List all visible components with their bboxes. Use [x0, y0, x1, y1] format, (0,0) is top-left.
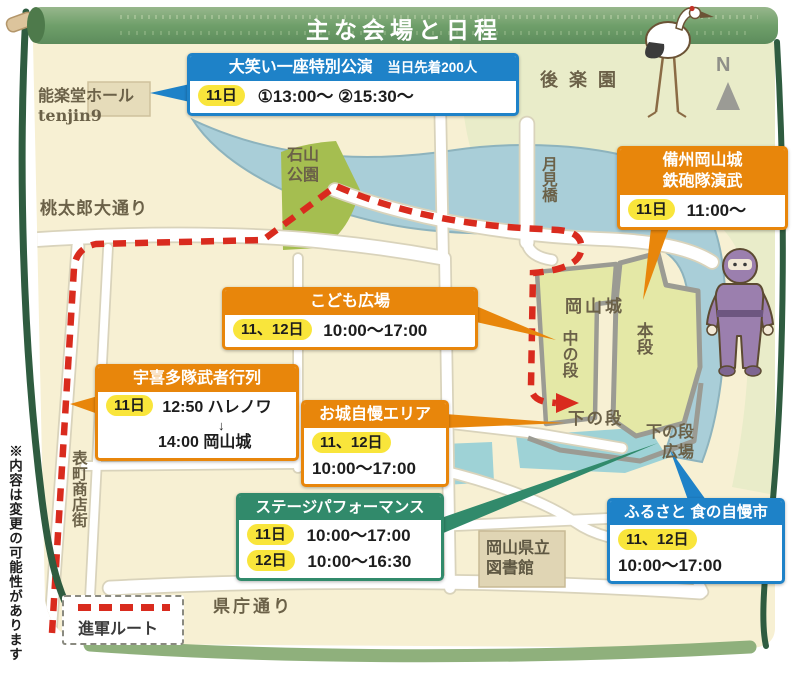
stage-row-2: 12日 10:00〜16:30 [247, 549, 433, 575]
ukita-arrow-icon: ↓ [106, 420, 288, 431]
label-omotecho: 表町商店街 [69, 450, 88, 562]
teppotai-name-line1: 備州岡山城 [624, 151, 781, 172]
label-shimonodan: 下の段 [568, 409, 624, 429]
callout-stage: ステージパフォーマンス 11日 10:00〜17:00 12日 10:00〜16… [236, 493, 444, 581]
label-kencho-dori: 県庁通り [213, 597, 293, 618]
oshiro-time: 10:00〜17:00 [312, 456, 438, 481]
callout-owarai: 大笑い一座特別公演 当日先着200人 11日 ①13:00〜 ②15:30〜 [187, 53, 519, 116]
stage-row-1: 11日 10:00〜17:00 [247, 523, 433, 549]
callout-oshiro: お城自慢エリア 11、12日 10:00〜17:00 [301, 400, 449, 487]
event-map-page: { "title": "主な会場と日程", "note": "※内容は変更の可能… [0, 0, 800, 679]
disclaimer-note: ※内容は変更の可能性があります [4, 444, 24, 676]
label-okayama-castle: 岡山城 [565, 297, 625, 318]
label-library: 岡山県立 図書館 [486, 538, 550, 577]
stage-name: ステージパフォーマンス [239, 496, 441, 520]
ukita-name: 宇喜多隊武者行列 [98, 367, 296, 392]
callout-furusato: ふるさと 食の自慢市 11、12日 10:00〜17:00 [607, 498, 785, 584]
page-title: 主な会場と日程 [30, 11, 778, 45]
label-nohgakudo: 能楽堂ホール tenjin9 [38, 86, 134, 125]
owarai-time: ①13:00〜 ②15:30〜 [258, 87, 414, 106]
owarai-note: 当日先着200人 [387, 60, 477, 75]
route-legend-label: 進軍ルート [78, 615, 182, 639]
compass-label: N [716, 54, 730, 77]
teppotai-name-line2: 鉄砲隊演武 [624, 172, 781, 193]
furusato-time: 10:00〜17:00 [618, 553, 774, 578]
furusato-days: 11、12日 [618, 529, 697, 550]
label-shimonodan-hiroba: 下の段 広場 [646, 422, 694, 461]
callout-kodomo: こども広場 11、12日 10:00〜17:00 [222, 287, 478, 350]
callout-ukita: 宇喜多隊武者行列 11日 12:50 ハレノワ ↓ 14:00 岡山城 [95, 364, 299, 461]
kodomo-name: こども広場 [225, 290, 475, 315]
ukita-time2: 14:00 岡山城 [106, 431, 288, 455]
teppotai-days: 11日 [628, 199, 675, 220]
route-legend: 進軍ルート [62, 595, 184, 645]
kodomo-time: 10:00〜17:00 [323, 321, 427, 340]
kodomo-days: 11、12日 [233, 319, 312, 340]
oshiro-name: お城自慢エリア [304, 403, 446, 428]
callout-teppotai: 備州岡山城 鉄砲隊演武 11日 11:00〜 [617, 146, 788, 230]
label-korakuen: 後楽園 [540, 70, 627, 92]
route-dash-sample [78, 604, 170, 611]
ukita-time1: 12:50 ハレノワ [162, 399, 271, 416]
ukita-days: 11日 [106, 395, 153, 416]
label-hondan: 本段 [633, 322, 653, 368]
furusato-name: ふるさと 食の自慢市 [610, 501, 782, 525]
teppotai-time: 11:00〜 [687, 201, 747, 220]
owarai-days: 11日 [198, 85, 245, 106]
owarai-name: 大笑い一座特別公演 [229, 59, 373, 76]
label-momotaro-dori: 桃太郎大通り [40, 199, 148, 220]
oshiro-days: 11、12日 [312, 432, 391, 453]
label-nakanodan: 中の段 [559, 330, 579, 390]
label-tsukimibashi: 月見橋 [539, 156, 558, 238]
label-ishiyama-park: 石山 公園 [287, 145, 319, 184]
